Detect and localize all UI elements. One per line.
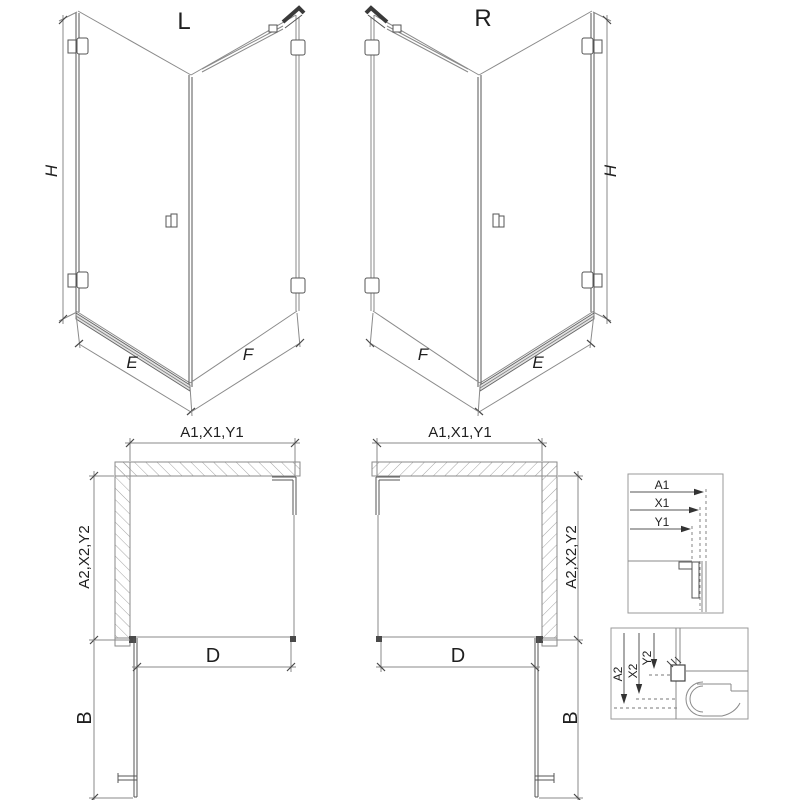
perspective-view-right [365, 8, 611, 416]
plan-right-inner-width-label: D [451, 645, 465, 667]
plan-right-door-swing-label: B [560, 711, 582, 724]
plan-right-width-label: A1,X1,Y1 [428, 424, 491, 441]
detail-wall-dim-x1: X1 [655, 496, 670, 510]
detail-wall-dim-a1: A1 [655, 478, 670, 492]
detail-tray-dim-a2: A2 [611, 666, 625, 681]
dim-label-height-left: H [42, 164, 61, 177]
plan-left-depth-label: A2,X2,Y2 [76, 525, 93, 588]
plan-view-left [89, 438, 300, 800]
dim-label-door-width-right: E [532, 353, 544, 372]
dim-label-door-width-left: E [126, 353, 138, 372]
plan-left-inner-width-label: D [206, 645, 220, 667]
detail-tray-dim-x2: X2 [626, 663, 640, 678]
dim-label-height-right: H [601, 164, 620, 177]
detail-tray-dim-y2: Y2 [640, 650, 654, 665]
plan-view-right [372, 438, 583, 800]
technical-drawing-canvas: L R H E F H E F A1,X1,Y1 A2,X2,Y2 B D A1… [0, 0, 800, 800]
variant-label-left: L [177, 8, 190, 35]
plan-left-door-swing-label: B [74, 711, 96, 724]
detail-wall-profile [628, 474, 723, 613]
detail-wall-dim-y1: Y1 [655, 515, 670, 529]
plan-left-width-label: A1,X1,Y1 [180, 424, 243, 441]
plan-right-depth-label: A2,X2,Y2 [563, 525, 580, 588]
dim-label-panel-width-left: F [243, 345, 255, 364]
dim-label-panel-width-right: F [418, 345, 430, 364]
variant-label-right: R [474, 5, 491, 32]
perspective-view-left [59, 8, 305, 416]
